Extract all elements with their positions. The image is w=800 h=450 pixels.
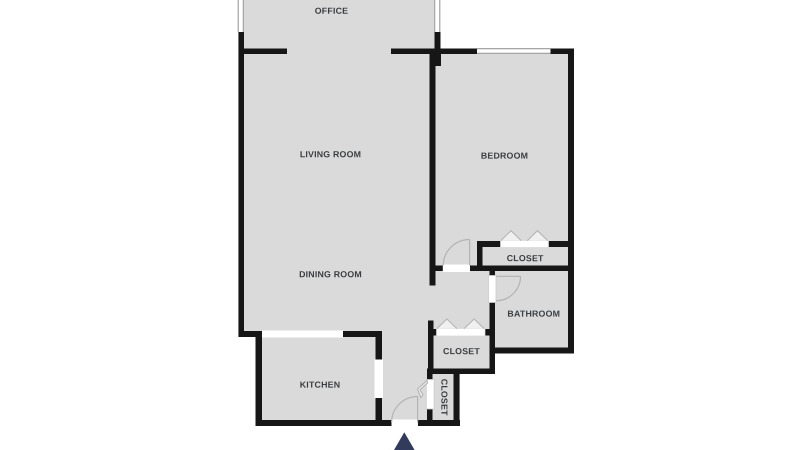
svg-text:CLOSET: CLOSET (439, 379, 449, 416)
svg-text:CLOSET: CLOSET (443, 346, 480, 356)
svg-text:DINING ROOM: DINING ROOM (299, 269, 362, 279)
svg-text:LIVING ROOM: LIVING ROOM (300, 149, 361, 159)
svg-text:OFFICE: OFFICE (315, 6, 348, 16)
svg-text:BEDROOM: BEDROOM (481, 151, 528, 161)
svg-text:CLOSET: CLOSET (507, 253, 544, 263)
svg-text:KITCHEN: KITCHEN (300, 380, 341, 390)
svg-text:BATHROOM: BATHROOM (507, 309, 560, 319)
